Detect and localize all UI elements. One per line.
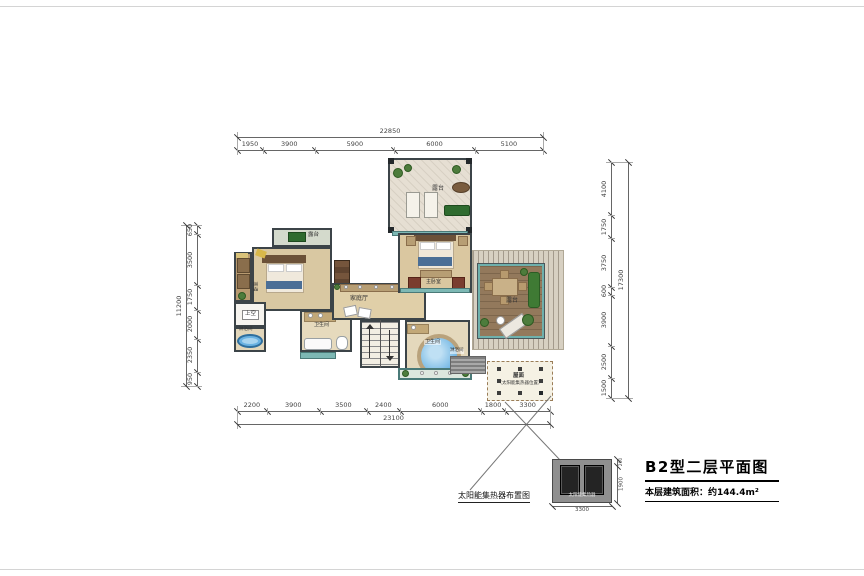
dim-label: 3900	[601, 303, 608, 337]
dim-extension	[394, 147, 395, 154]
title-block: B2型二层平面图 本层建筑面积：约144.4m²	[645, 456, 779, 502]
dim-label: 3500	[326, 402, 360, 409]
dim-label: 5900	[338, 141, 372, 148]
dim-label: 11200	[176, 289, 183, 323]
dim-extension	[194, 386, 201, 387]
dim-label: 2400	[366, 402, 400, 409]
dim-label: 23100	[377, 415, 411, 422]
dim-extension	[194, 225, 201, 226]
dim-extension	[194, 234, 201, 235]
solar-layout-label: 太阳能集热器布置图	[458, 490, 530, 503]
dim-line	[611, 162, 612, 398]
dim-extension	[194, 339, 201, 340]
dim-label: 6000	[423, 402, 457, 409]
dim-extension	[608, 238, 615, 239]
dim-label: 3300	[511, 402, 545, 409]
detail-dim-width: 3300	[565, 508, 599, 514]
dim-line	[237, 150, 543, 151]
dim-label: 1800	[476, 402, 510, 409]
dim-extension	[550, 408, 551, 415]
dim-label: 1750	[601, 210, 608, 244]
dim-extension	[237, 408, 238, 415]
dim-label: 650	[187, 213, 194, 247]
dim-label: 5100	[492, 141, 526, 148]
dim-label: 3900	[276, 402, 310, 409]
dim-extension	[315, 147, 316, 154]
dim-extension	[475, 147, 476, 154]
dim-extension	[263, 147, 264, 154]
dim-label: 17300	[618, 263, 625, 297]
dim-extension	[367, 408, 368, 415]
dim-label: 1950	[233, 141, 267, 148]
drawing-title: B2型二层平面图	[645, 456, 779, 482]
drawing-sheet: 露台 露台 卧室 上空 淋浴间	[0, 0, 864, 576]
dim-extension	[608, 287, 615, 288]
dim-label: 2000	[187, 307, 194, 341]
dim-line	[237, 411, 550, 412]
dim-label: 1500	[601, 371, 608, 405]
dim-extension	[267, 408, 268, 415]
dim-extension	[608, 295, 615, 296]
dim-line	[237, 137, 543, 138]
detail-dim-height: 1900	[619, 467, 625, 501]
dim-extension	[505, 408, 506, 415]
dim-label: 22850	[373, 128, 407, 135]
dim-label: 4100	[601, 172, 608, 206]
dim-extension	[608, 378, 615, 379]
dim-label: 3500	[187, 243, 194, 277]
solar-collector-module	[560, 465, 580, 495]
dim-extension	[320, 408, 321, 415]
detail-caption: 太阳能集热器	[552, 494, 612, 499]
solar-collector-module	[584, 465, 604, 495]
dim-label: 3900	[272, 141, 306, 148]
dim-extension	[194, 310, 201, 311]
dim-line	[197, 225, 198, 386]
dim-extension	[237, 147, 238, 154]
dim-extension	[481, 408, 482, 415]
dim-label: 950	[187, 362, 194, 396]
dim-extension	[194, 285, 201, 286]
dim-extension	[608, 346, 615, 347]
floor-area-text: 本层建筑面积：约144.4m²	[645, 482, 779, 502]
dim-extension	[608, 215, 615, 216]
dim-label: 6000	[418, 141, 452, 148]
dim-extension	[608, 398, 615, 399]
dim-label: 2200	[235, 402, 269, 409]
dim-extension	[543, 147, 544, 154]
dim-line	[237, 424, 550, 425]
dim-extension	[608, 162, 615, 163]
dim-line	[628, 162, 629, 398]
dim-extension	[194, 372, 201, 373]
